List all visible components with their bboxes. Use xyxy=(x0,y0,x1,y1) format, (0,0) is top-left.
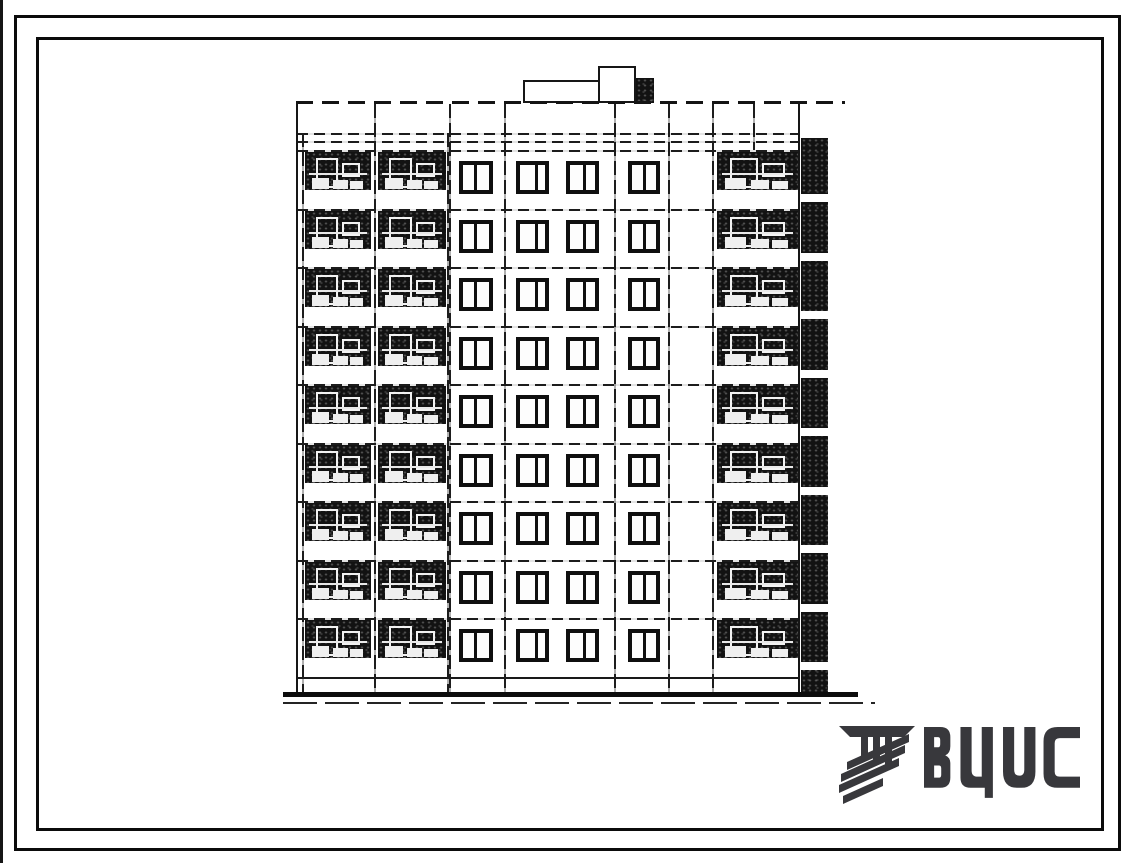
balcony-block-sketch xyxy=(350,357,363,365)
window xyxy=(516,278,549,311)
window-mullion xyxy=(535,341,538,366)
window-mullion xyxy=(474,224,477,249)
facade-seam xyxy=(297,133,799,135)
balcony-block-sketch xyxy=(407,414,422,423)
balcony-block-sketch xyxy=(751,414,769,423)
window-mullion xyxy=(643,224,646,249)
window xyxy=(628,220,660,253)
floor-seam xyxy=(297,560,799,562)
balcony-recess xyxy=(378,328,446,366)
end-wall-gap xyxy=(801,545,828,553)
balcony-block-sketch xyxy=(333,531,348,540)
balcony-parapet-band xyxy=(712,366,800,385)
balcony-block-sketch xyxy=(312,295,329,306)
facade-seam xyxy=(297,141,799,143)
floor-seam xyxy=(297,267,799,269)
window xyxy=(628,512,660,545)
window xyxy=(628,337,660,370)
balcony-block-sketch xyxy=(312,354,329,365)
window xyxy=(628,629,660,662)
balcony-block-sketch xyxy=(772,591,788,599)
floor-seam xyxy=(297,209,799,211)
balcony-block-sketch xyxy=(424,474,438,482)
balcony-parapet-band xyxy=(712,658,800,677)
window-mullion xyxy=(583,575,586,600)
balcony-block-sketch xyxy=(772,474,788,482)
window xyxy=(516,337,549,370)
ground-line-dashed xyxy=(283,702,875,704)
vcis-mark-icon xyxy=(837,722,917,806)
balcony-block-sketch xyxy=(424,240,438,248)
balcony-block-sketch xyxy=(350,532,363,540)
window xyxy=(516,512,549,545)
balcony-recess xyxy=(717,445,798,483)
vcis-logo: ВЦИС xyxy=(836,718,1082,810)
logo-text: ВЦИС xyxy=(836,718,837,719)
window xyxy=(459,454,493,487)
balcony-recess xyxy=(717,211,798,249)
balcony-block-sketch xyxy=(385,295,403,306)
balcony-block-sketch xyxy=(385,588,403,599)
window-mullion xyxy=(643,282,646,307)
balcony-block-sketch xyxy=(725,178,746,189)
window xyxy=(516,571,549,604)
balcony-block-sketch xyxy=(312,237,329,248)
balcony-block-sketch xyxy=(772,649,788,657)
balcony-rail-sketch xyxy=(309,232,367,234)
letter-ve xyxy=(924,727,950,788)
balcony-recess xyxy=(378,562,446,600)
balcony-rail-sketch xyxy=(722,232,793,234)
balcony-recess xyxy=(378,445,446,483)
balcony-block-sketch xyxy=(350,181,363,189)
end-wall-gap xyxy=(801,428,828,436)
balcony-block-sketch xyxy=(424,298,438,306)
window xyxy=(459,629,493,662)
balcony-parapet-band xyxy=(712,190,800,209)
balcony-block-sketch xyxy=(385,237,403,248)
balcony-block-sketch xyxy=(407,590,422,599)
balcony-recess xyxy=(305,152,371,190)
window-mullion xyxy=(643,165,646,190)
balcony-block-sketch xyxy=(350,298,363,306)
window-mullion xyxy=(583,399,586,424)
window-mullion xyxy=(474,341,477,366)
end-wall-gap xyxy=(801,370,828,378)
balcony-recess xyxy=(305,503,371,541)
panel-joint xyxy=(449,104,451,693)
panel-joint xyxy=(712,104,714,693)
balcony-joint xyxy=(447,133,449,693)
window xyxy=(516,395,549,428)
base-line xyxy=(297,677,799,679)
balcony-recess xyxy=(378,503,446,541)
balcony-block-sketch xyxy=(725,354,746,365)
window-mullion xyxy=(643,516,646,541)
window xyxy=(516,161,549,194)
balcony-block-sketch xyxy=(312,646,329,657)
balcony-block-sketch xyxy=(333,473,348,482)
balcony-rail-sketch xyxy=(382,641,442,643)
balcony-rail-sketch xyxy=(309,349,367,351)
balcony-recess xyxy=(717,620,798,658)
balcony-rail-sketch xyxy=(722,349,793,351)
balcony-rail-sketch xyxy=(722,583,793,585)
window-mullion xyxy=(474,516,477,541)
window-mullion xyxy=(583,458,586,483)
balcony-rail-sketch xyxy=(309,466,367,468)
elevator-shaft-box xyxy=(598,66,636,103)
window-mullion xyxy=(474,282,477,307)
balcony-block-sketch xyxy=(772,298,788,306)
balcony-rail-sketch xyxy=(382,466,442,468)
balcony-recess xyxy=(717,269,798,307)
end-wall-gap xyxy=(801,662,828,670)
window xyxy=(459,512,493,545)
floor-seam xyxy=(297,150,799,152)
window-mullion xyxy=(583,165,586,190)
balcony-block-sketch xyxy=(725,237,746,248)
window-mullion xyxy=(474,575,477,600)
balcony-block-sketch xyxy=(350,240,363,248)
balcony-rail-sketch xyxy=(722,466,793,468)
balcony-rail-sketch xyxy=(382,524,442,526)
balcony-block-sketch xyxy=(751,531,769,540)
window-mullion xyxy=(535,458,538,483)
balcony-block-sketch xyxy=(312,412,329,423)
window-mullion xyxy=(535,282,538,307)
window-mullion xyxy=(535,224,538,249)
balcony-recess xyxy=(717,503,798,541)
balcony-recess xyxy=(305,445,371,483)
balcony-block-sketch xyxy=(312,588,329,599)
window xyxy=(566,512,599,545)
balcony-block-sketch xyxy=(407,180,422,189)
window-mullion xyxy=(643,575,646,600)
balcony-rail-sketch xyxy=(309,407,367,409)
window xyxy=(516,220,549,253)
balcony-rail-sketch xyxy=(382,173,442,175)
balcony-block-sketch xyxy=(725,295,746,306)
balcony-block-sketch xyxy=(312,529,329,540)
panel-joint xyxy=(668,104,670,693)
balcony-block-sketch xyxy=(407,239,422,248)
balcony-parapet-band xyxy=(712,600,800,619)
balcony-rail-sketch xyxy=(722,524,793,526)
balcony-recess xyxy=(378,152,446,190)
roof-vent-block xyxy=(636,78,654,103)
balcony-rail-sketch xyxy=(722,407,793,409)
window-mullion xyxy=(535,516,538,541)
window-mullion xyxy=(535,399,538,424)
balcony-block-sketch xyxy=(772,532,788,540)
balcony-rail-sketch xyxy=(382,583,442,585)
window-mullion xyxy=(474,399,477,424)
window xyxy=(566,629,599,662)
balcony-block-sketch xyxy=(333,590,348,599)
balcony-block-sketch xyxy=(350,649,363,657)
balcony-recess xyxy=(378,269,446,307)
window xyxy=(459,161,493,194)
balcony-block-sketch xyxy=(407,297,422,306)
window xyxy=(628,161,660,194)
mark-top-bar xyxy=(839,726,915,737)
floor-seam xyxy=(297,443,799,445)
end-wall-gap xyxy=(801,311,828,319)
balcony-block-sketch xyxy=(407,531,422,540)
balcony-parapet-band xyxy=(712,483,800,502)
balcony-block-sketch xyxy=(350,474,363,482)
window xyxy=(566,454,599,487)
balcony-rail-sketch xyxy=(382,349,442,351)
window xyxy=(628,571,660,604)
balcony-parapet-band xyxy=(712,249,800,268)
floor-seam xyxy=(297,618,799,620)
balcony-block-sketch xyxy=(725,412,746,423)
window-mullion xyxy=(583,282,586,307)
balcony-rail-sketch xyxy=(382,290,442,292)
balcony-block-sketch xyxy=(751,648,769,657)
window xyxy=(516,629,549,662)
window-mullion xyxy=(583,516,586,541)
window xyxy=(459,337,493,370)
balcony-rail-sketch xyxy=(309,641,367,643)
window-mullion xyxy=(583,224,586,249)
balcony-block-sketch xyxy=(333,414,348,423)
window-mullion xyxy=(474,633,477,658)
balcony-block-sketch xyxy=(333,297,348,306)
balcony-rail-sketch xyxy=(382,232,442,234)
panel-joint xyxy=(374,104,376,693)
balcony-block-sketch xyxy=(751,180,769,189)
balcony-block-sketch xyxy=(772,181,788,189)
balcony-rail-sketch xyxy=(722,173,793,175)
window xyxy=(459,220,493,253)
letter-tse xyxy=(960,727,992,798)
balcony-block-sketch xyxy=(385,354,403,365)
balcony-block-sketch xyxy=(333,648,348,657)
floor-seam xyxy=(297,501,799,503)
letter-i xyxy=(1003,727,1035,788)
window-mullion xyxy=(474,165,477,190)
end-wall-gap xyxy=(801,487,828,495)
window-mullion xyxy=(643,399,646,424)
balcony-recess xyxy=(305,562,371,600)
balcony-recess xyxy=(717,386,798,424)
window xyxy=(566,161,599,194)
balcony-parapet-band xyxy=(712,541,800,560)
balcony-rail-sketch xyxy=(722,290,793,292)
window xyxy=(566,337,599,370)
balcony-block-sketch xyxy=(424,415,438,423)
balcony-block-sketch xyxy=(772,357,788,365)
penthouse-box xyxy=(523,80,600,103)
balcony-block-sketch xyxy=(312,471,329,482)
balcony-recess xyxy=(305,211,371,249)
balcony-block-sketch xyxy=(424,649,438,657)
balcony-block-sketch xyxy=(751,356,769,365)
balcony-rail-sketch xyxy=(309,173,367,175)
balcony-block-sketch xyxy=(350,415,363,423)
balcony-block-sketch xyxy=(751,297,769,306)
window xyxy=(628,454,660,487)
window xyxy=(566,220,599,253)
parapet-line xyxy=(296,101,845,104)
panel-joint xyxy=(504,104,506,693)
balcony-rail-sketch xyxy=(722,641,793,643)
floor-seam xyxy=(297,384,799,386)
window-mullion xyxy=(643,633,646,658)
balcony-block-sketch xyxy=(424,532,438,540)
balcony-block-sketch xyxy=(385,471,403,482)
balcony-block-sketch xyxy=(385,412,403,423)
window xyxy=(459,395,493,428)
balcony-block-sketch xyxy=(751,239,769,248)
balcony-recess xyxy=(305,269,371,307)
balcony-recess xyxy=(717,328,798,366)
balcony-block-sketch xyxy=(385,529,403,540)
ground-line xyxy=(283,692,858,697)
drawing-sheet: ВЦИС xyxy=(0,0,1134,863)
balcony-block-sketch xyxy=(772,240,788,248)
window-mullion xyxy=(535,575,538,600)
building-outline-left xyxy=(296,101,298,693)
balcony-recess xyxy=(717,562,798,600)
balcony-block-sketch xyxy=(424,181,438,189)
balcony-block-sketch xyxy=(424,591,438,599)
balcony-block-sketch xyxy=(333,356,348,365)
balcony-rail-sketch xyxy=(309,290,367,292)
window-mullion xyxy=(583,341,586,366)
balcony-block-sketch xyxy=(407,473,422,482)
balcony-recess xyxy=(378,386,446,424)
balcony-block-sketch xyxy=(333,180,348,189)
window-mullion xyxy=(643,341,646,366)
balcony-recess xyxy=(717,152,798,190)
window-mullion xyxy=(535,633,538,658)
balcony-block-sketch xyxy=(725,529,746,540)
balcony-recess xyxy=(305,620,371,658)
balcony-recess xyxy=(305,386,371,424)
end-wall-gap xyxy=(801,194,828,202)
window xyxy=(628,278,660,311)
end-wall-gap xyxy=(801,604,828,612)
floor-seam xyxy=(297,326,799,328)
window xyxy=(566,278,599,311)
window-mullion xyxy=(535,165,538,190)
balcony-parapet-band xyxy=(712,307,800,326)
vcis-wordmark xyxy=(924,727,1080,802)
balcony-rail-sketch xyxy=(309,524,367,526)
balcony-block-sketch xyxy=(772,415,788,423)
window xyxy=(459,278,493,311)
window xyxy=(566,395,599,428)
panel-joint xyxy=(614,104,616,693)
balcony-recess xyxy=(378,620,446,658)
window-mullion xyxy=(643,458,646,483)
balcony-block-sketch xyxy=(350,591,363,599)
window-mullion xyxy=(474,458,477,483)
window xyxy=(628,395,660,428)
balcony-block-sketch xyxy=(725,588,746,599)
letter-es xyxy=(1044,727,1080,788)
balcony-recess xyxy=(305,328,371,366)
balcony-rail-sketch xyxy=(309,583,367,585)
balcony-block-sketch xyxy=(725,471,746,482)
balcony-parapet-band xyxy=(712,424,800,443)
balcony-block-sketch xyxy=(751,590,769,599)
balcony-joint xyxy=(302,133,304,693)
panel-joint xyxy=(753,104,755,150)
balcony-recess xyxy=(378,211,446,249)
balcony-block-sketch xyxy=(424,357,438,365)
balcony-block-sketch xyxy=(407,648,422,657)
balcony-block-sketch xyxy=(333,239,348,248)
window xyxy=(459,571,493,604)
balcony-rail-sketch xyxy=(382,407,442,409)
end-wall-gap xyxy=(801,253,828,261)
balcony-block-sketch xyxy=(385,646,403,657)
balcony-block-sketch xyxy=(312,178,329,189)
balcony-block-sketch xyxy=(385,178,403,189)
window-mullion xyxy=(583,633,586,658)
window xyxy=(566,571,599,604)
balcony-block-sketch xyxy=(725,646,746,657)
balcony-block-sketch xyxy=(407,356,422,365)
building-outline-right xyxy=(798,101,800,693)
balcony-block-sketch xyxy=(751,473,769,482)
window xyxy=(516,454,549,487)
